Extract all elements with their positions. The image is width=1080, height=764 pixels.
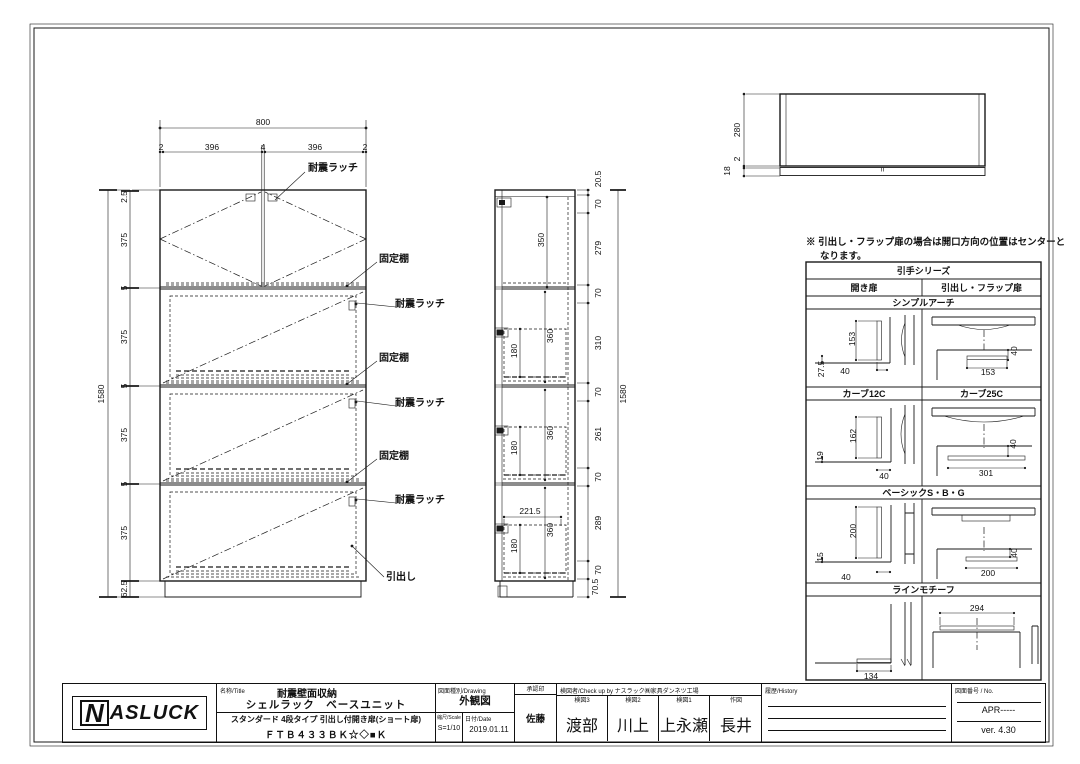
label-drawer: 引出し (386, 573, 416, 583)
label-seismic-latch: 耐震ラッチ (395, 300, 445, 310)
date-label: 日付/Date (465, 714, 491, 723)
name-label: 名称/Title (220, 686, 245, 695)
approval-cell: 承認印 佐藤 (514, 684, 556, 742)
product-name: シェルラック ベースユニット (217, 697, 435, 712)
dim-label: 294 (970, 604, 984, 613)
drawing-no-cell: 図面番号 / No. APR----- ver. 4.30 (951, 684, 1045, 742)
dim-label: 375 (120, 330, 129, 344)
dim-label: 5 (120, 384, 129, 389)
approval-name: 佐藤 (515, 695, 556, 741)
dim-label: 375 (120, 526, 129, 540)
check3-label: 検図3 (557, 695, 608, 706)
handle-table-col-drawer: 引出し・フラップ扉 (922, 279, 1041, 296)
dim-label: 310 (594, 336, 603, 350)
dim-label: 360 (546, 523, 555, 537)
dim-label: 70 (594, 387, 603, 396)
dim-label: 5 (120, 286, 129, 291)
dim-label: 153 (848, 332, 857, 346)
dim-label: 40 (1010, 548, 1019, 557)
handle-table-title: 引手シリーズ (806, 262, 1041, 279)
note-line2: なります。 (820, 248, 867, 262)
dim-label: 396 (205, 143, 219, 152)
dim-label: 19 (816, 451, 825, 460)
check1-name: 上永瀬 (659, 706, 710, 741)
checkup-label: 検図者/Check up by ナスラック㈱家具ダンネツ工場 (560, 686, 699, 695)
check2-name: 川上 (608, 706, 659, 741)
note-line1: ※ 引出し・フラップ扉の場合は開口方向の位置はセンターと (806, 234, 1065, 248)
draw-by-label: 作図 (710, 695, 762, 706)
annotation-layer: 800239643962耐震ラッチ固定棚耐震ラッチ固定棚耐震ラッチ固定棚耐震ラッ… (0, 0, 1080, 764)
label-fixed-shelf: 固定棚 (379, 255, 409, 265)
dim-label: 162 (849, 429, 858, 443)
dim-label: 360 (546, 426, 555, 440)
band-curve25c: カーブ25C (922, 387, 1041, 400)
version-value: ver. 4.30 (952, 725, 1045, 735)
label-seismic-latch: 耐震ラッチ (395, 399, 445, 409)
check3-name: 渡部 (557, 706, 608, 741)
name-cell: 名称/Title 耐震壁面収納 シェルラック ベースユニット スタンダード 4段… (216, 684, 435, 742)
dim-label: 800 (256, 118, 270, 127)
dim-label: 40 (841, 573, 850, 582)
dim-label: 70 (594, 199, 603, 208)
dim-label: 5 (120, 482, 129, 487)
dim-label: 70 (594, 565, 603, 574)
dim-label: 200 (849, 524, 858, 538)
dim-label: 18 (723, 166, 732, 175)
label-fixed-shelf: 固定棚 (379, 452, 409, 462)
date-cell: 日付/Date 2019.01.11 (463, 713, 515, 742)
dim-label: 2.5 (120, 191, 129, 203)
dim-label: 1580 (619, 385, 628, 404)
label-fixed-shelf: 固定棚 (379, 354, 409, 364)
dim-label: 180 (510, 344, 519, 358)
dim-label: 70.5 (591, 579, 600, 596)
check1-label: 検図1 (659, 695, 710, 706)
dim-label: 2 (733, 157, 742, 162)
dim-label: 40 (1009, 439, 1018, 448)
dim-label: 27.5 (817, 361, 826, 378)
dim-label: 15 (816, 552, 825, 561)
logo-rest: ASLUCK (110, 702, 199, 725)
dim-label: 180 (510, 441, 519, 455)
dim-label: 375 (120, 233, 129, 247)
nasluck-logo: N ASLUCK (72, 696, 207, 730)
dim-label: 2 (363, 143, 368, 152)
logo-cell: N ASLUCK (63, 684, 216, 742)
dim-label: 70 (594, 472, 603, 481)
dim-label: 40 (879, 472, 888, 481)
logo-n: N (80, 700, 109, 726)
dim-label: 153 (981, 368, 995, 377)
history-cell: 履歴/History (761, 684, 951, 742)
dim-label: 261 (594, 427, 603, 441)
band-line-motif: ラインモチーフ (806, 583, 1041, 596)
drawing-no-value: APR----- (952, 705, 1045, 715)
dim-label: 134 (864, 672, 878, 681)
drawing-type-value: 外観図 (436, 693, 514, 708)
dim-label: 280 (733, 123, 742, 137)
dim-label: 180 (510, 539, 519, 553)
band-curve12c: カーブ12C (806, 387, 922, 400)
dim-label: 221.5 (519, 507, 540, 516)
dim-label: 200 (981, 569, 995, 578)
dim-label: 360 (546, 329, 555, 343)
dim-label: 301 (979, 469, 993, 478)
scale-value: S=1/10 (436, 725, 462, 732)
dim-label: 2 (159, 143, 164, 152)
product-code: ＦＴＢ４３３ＢＫ☆◇■Ｋ (217, 727, 435, 741)
drawing-no-label: 図面番号 / No. (955, 686, 993, 695)
dim-label: 279 (594, 241, 603, 255)
dim-label: 396 (308, 143, 322, 152)
dim-label: 350 (537, 233, 546, 247)
drawing-sheet: 800239643962耐震ラッチ固定棚耐震ラッチ固定棚耐震ラッチ固定棚耐震ラッ… (0, 0, 1080, 764)
checkup-cell: 検図者/Check up by ナスラック㈱家具ダンネツ工場 検図3 検図2 検… (556, 684, 761, 742)
label-seismic-latch: 耐震ラッチ (308, 164, 358, 174)
dim-label: 375 (120, 428, 129, 442)
dim-label: 70 (594, 288, 603, 297)
dim-label: 62.5 (120, 581, 129, 598)
dim-label: 40 (840, 367, 849, 376)
title-block: N ASLUCK 名称/Title 耐震壁面収納 シェルラック ベースユニット … (62, 683, 1046, 743)
scale-label: 縮尺/Scale (437, 714, 461, 721)
band-basic: ベーシックS・B・G (806, 486, 1041, 499)
handle-table-col-hinged: 開き扉 (806, 279, 922, 296)
drawing-type-cell: 図面種別/Drawing 外観図 縮尺/Scale S=1/10 日付/Date… (435, 684, 514, 742)
scale-cell: 縮尺/Scale S=1/10 (436, 713, 463, 742)
band-simple-arch: シンプルアーチ (806, 296, 1041, 309)
product-spec: スタンダード 4段タイプ 引出し付開き扉(ショート扉) (217, 714, 435, 725)
history-label: 履歴/History (765, 686, 797, 695)
date-value: 2019.01.11 (463, 725, 515, 734)
approval-label: 承認印 (515, 684, 556, 695)
check2-label: 検図2 (608, 695, 659, 706)
dim-label: 4 (261, 143, 266, 152)
dim-label: 40 (1010, 346, 1019, 355)
label-seismic-latch: 耐震ラッチ (395, 496, 445, 506)
dim-label: 289 (594, 516, 603, 530)
draw-by-name: 長井 (710, 706, 762, 741)
dim-label: 20.5 (594, 171, 603, 188)
dim-label: 1580 (97, 385, 106, 404)
